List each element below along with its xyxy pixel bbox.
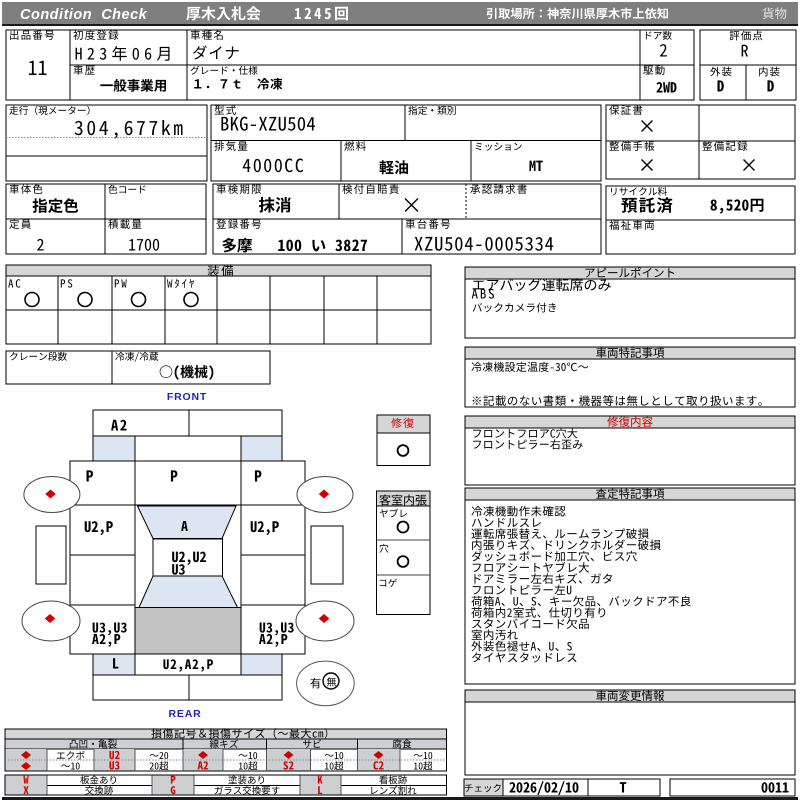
svg-text:REAR: REAR (169, 708, 202, 720)
svg-text:Condition Check: Condition Check (20, 7, 148, 23)
svg-text:FRONT: FRONT (167, 391, 207, 403)
